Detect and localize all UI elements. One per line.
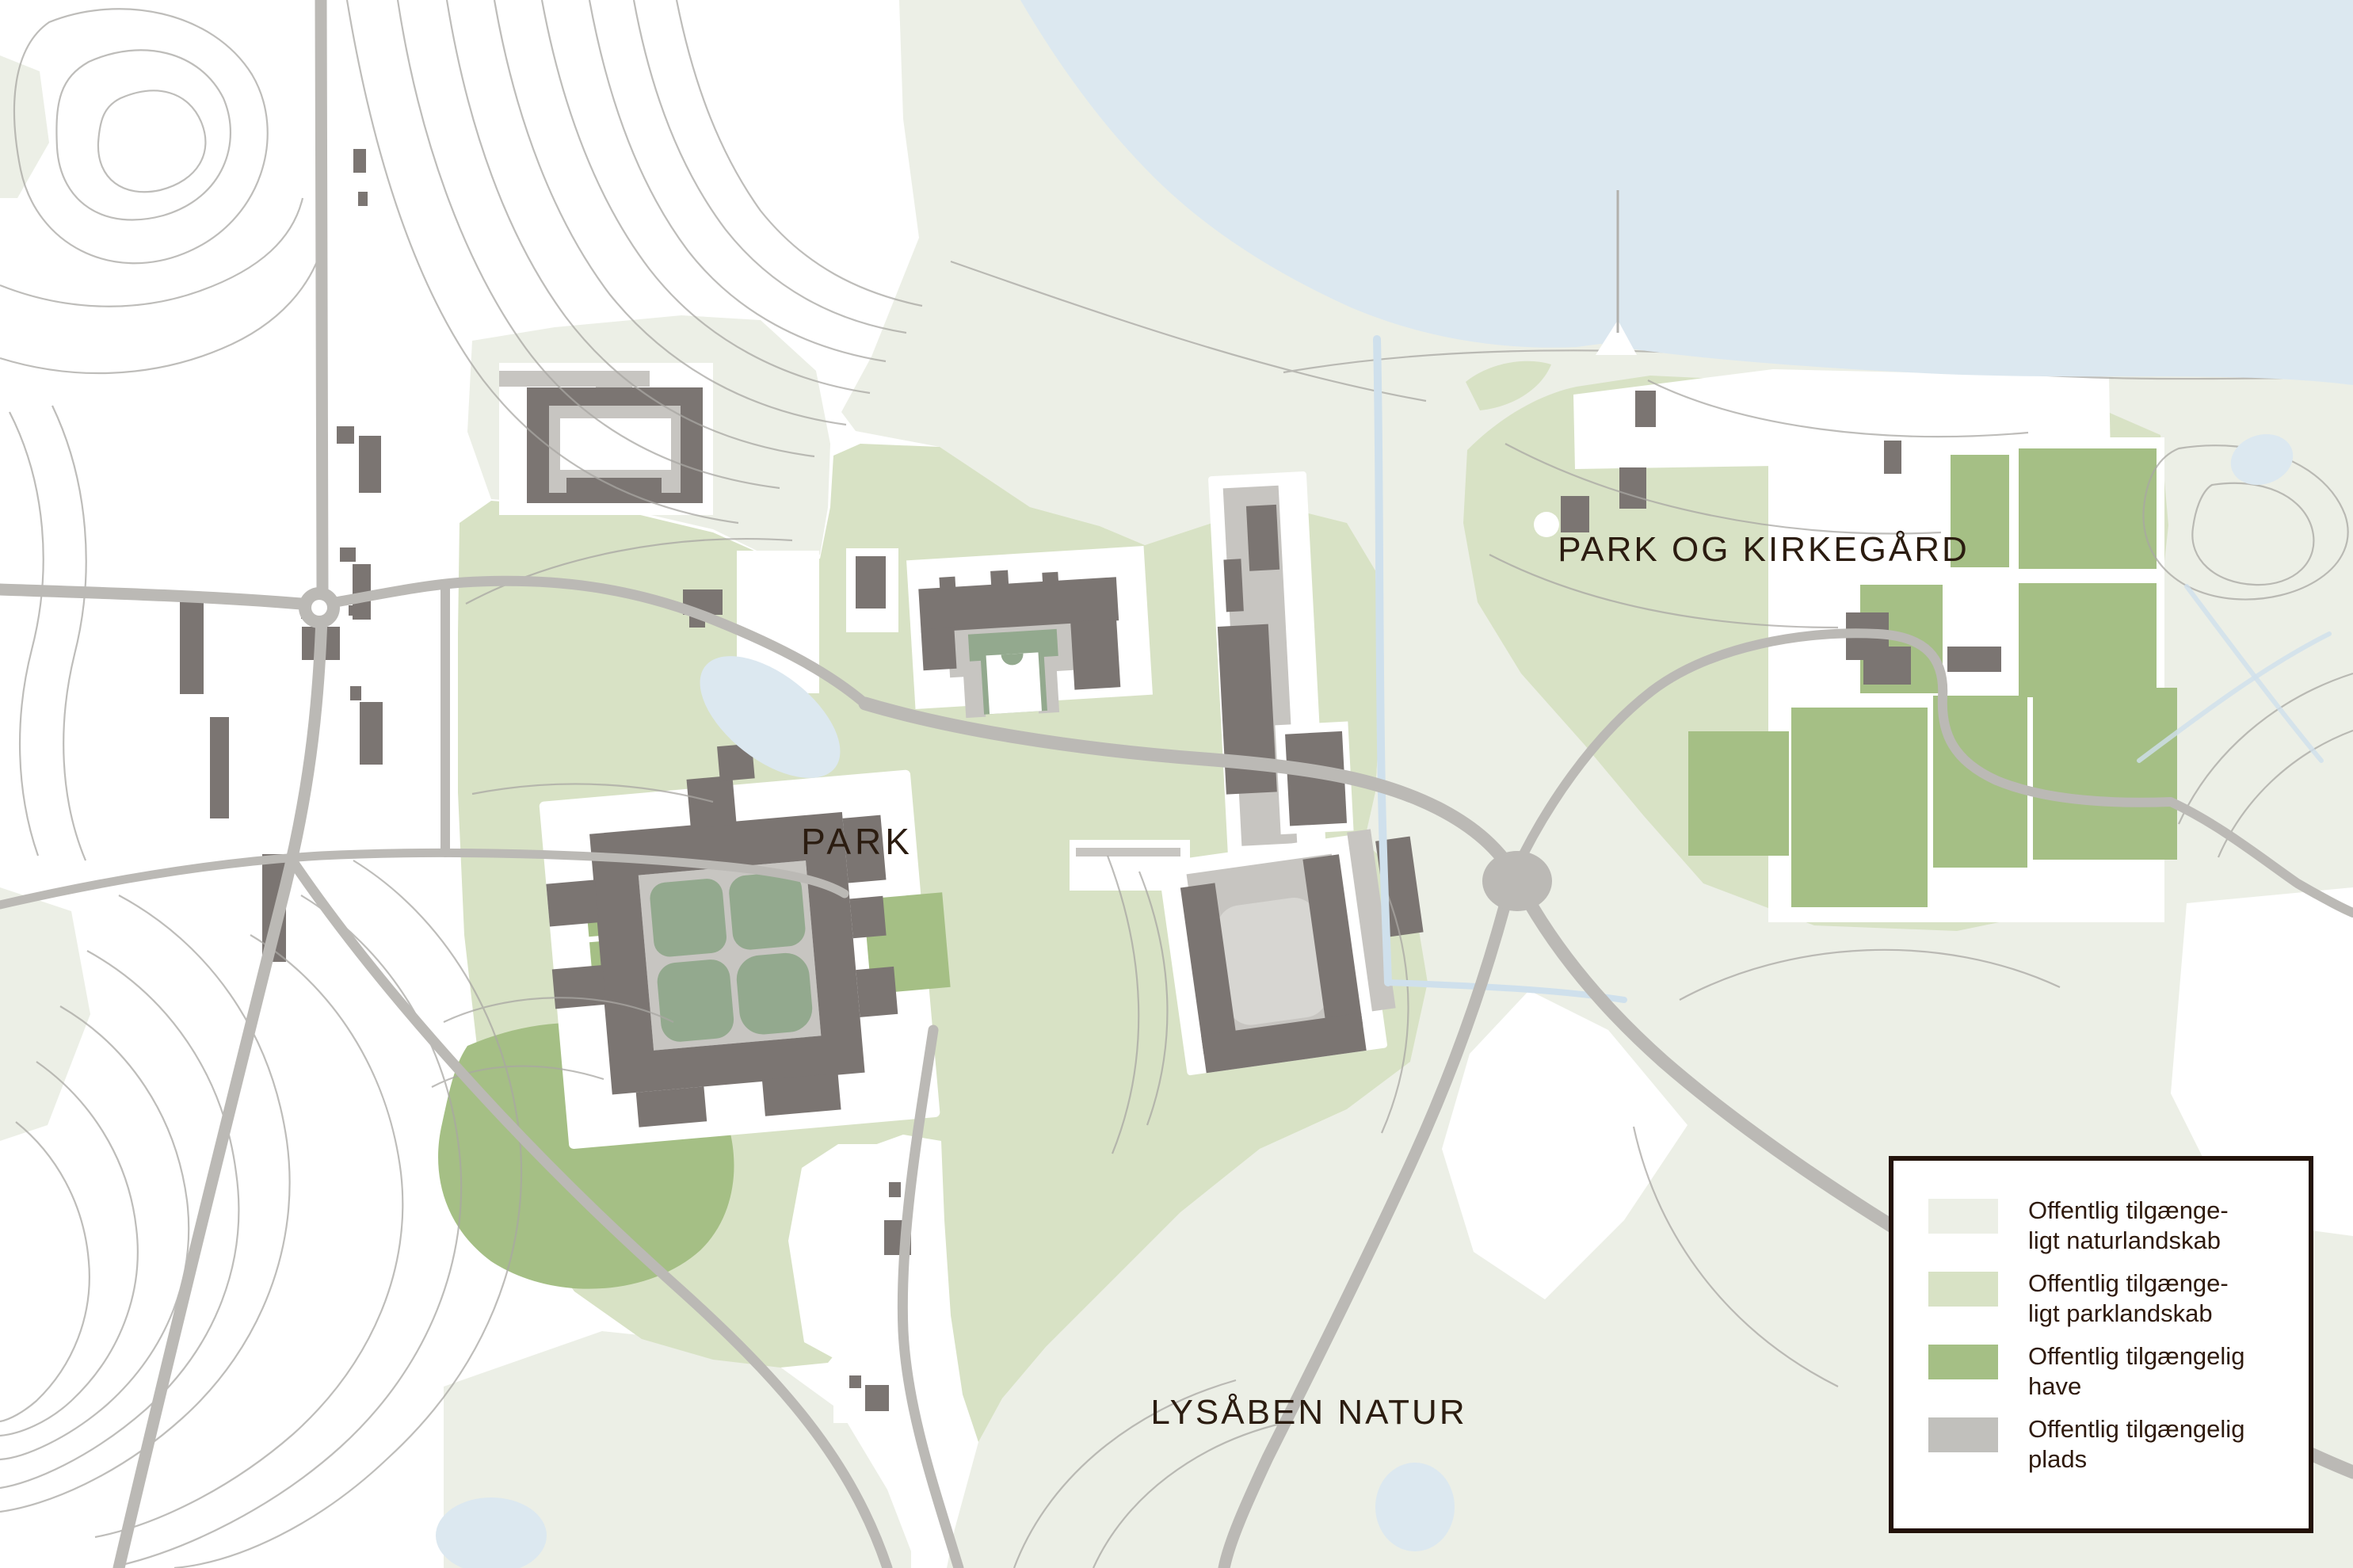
legend-label-line: plads bbox=[2028, 1444, 2244, 1475]
label-park: PARK bbox=[801, 821, 913, 862]
label-park-og-kirkegaard: PARK OG KIRKEGÅRD bbox=[1558, 530, 1970, 569]
label-lysaaben-natur: LYSÅBEN NATUR bbox=[1150, 1393, 1466, 1432]
legend-label-line: Offentlig tilgængelig bbox=[2028, 1341, 2244, 1372]
legend-item-plads: Offentlig tilgængelig plads bbox=[1928, 1414, 2280, 1475]
legend-label-line: ligt parklandskab bbox=[2028, 1299, 2229, 1329]
legend-swatch-have bbox=[1928, 1345, 1998, 1379]
legend-label-line: Offentlig tilgænge- bbox=[2028, 1269, 2229, 1299]
site-plan-map: PARK PARK OG KIRKEGÅRD LYSÅBEN NATUR Off… bbox=[0, 0, 2353, 1568]
u-building-complex bbox=[499, 363, 713, 515]
palace-outbuilding bbox=[856, 556, 886, 609]
legend-label-line: have bbox=[2028, 1372, 2244, 1402]
pond-south bbox=[1375, 1463, 1455, 1551]
roundabout-island bbox=[311, 600, 327, 616]
legend-item-have: Offentlig tilgængelig have bbox=[1928, 1341, 2280, 1402]
legend-swatch-plads bbox=[1928, 1417, 1998, 1452]
legend-label-line: Offentlig tilgænge- bbox=[2028, 1196, 2229, 1226]
legend-label-line: Offentlig tilgængelig bbox=[2028, 1414, 2244, 1444]
legend-swatch-naturlandskab bbox=[1928, 1199, 1998, 1234]
palace-complex bbox=[906, 546, 1154, 721]
y-junction bbox=[1482, 851, 1552, 911]
legend-swatch-parklandskab bbox=[1928, 1272, 1998, 1307]
avenue-side-structure bbox=[1076, 848, 1180, 856]
legend: Offentlig tilgænge- ligt naturlandskab O… bbox=[1889, 1156, 2313, 1533]
legend-label-line: ligt naturlandskab bbox=[2028, 1226, 2229, 1256]
legend-item-naturlandskab: Offentlig tilgænge- ligt naturlandskab bbox=[1928, 1196, 2280, 1256]
legend-item-parklandskab: Offentlig tilgænge- ligt parklandskab bbox=[1928, 1269, 2280, 1329]
road-west-horizontal bbox=[0, 589, 301, 604]
cemetery-fountain bbox=[1534, 512, 1559, 537]
